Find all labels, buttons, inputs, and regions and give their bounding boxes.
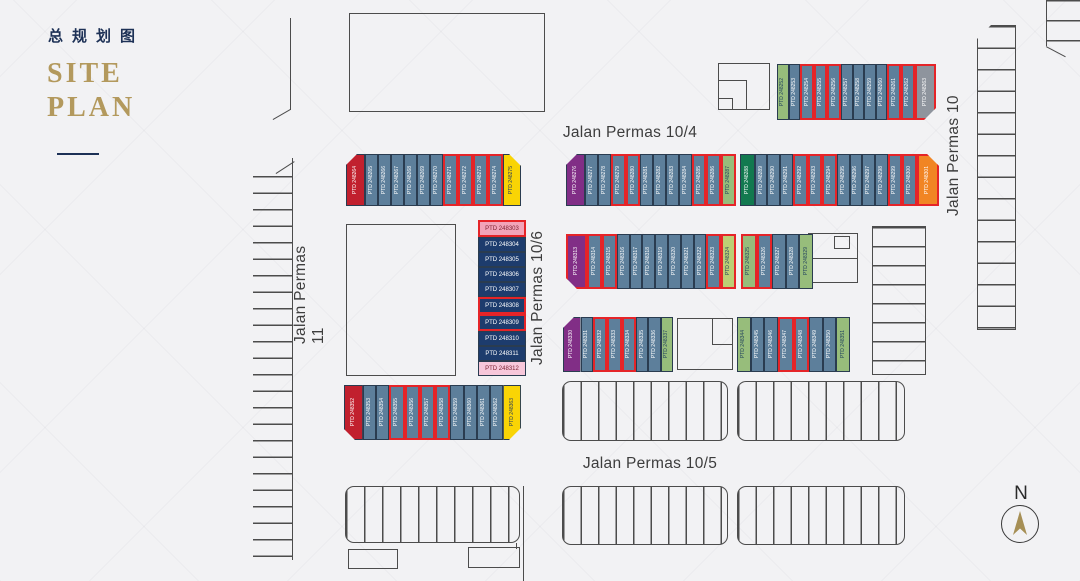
lot-ptd-248269[interactable]: PTD 248269	[417, 154, 430, 206]
lot-label: PTD 248335	[640, 330, 645, 358]
cluster-row4-east: PTD 248344PTD 248345PTD 248346PTD 248347…	[737, 317, 850, 372]
compass-north-label: N	[1006, 483, 1036, 505]
lot-ptd-248357[interactable]: PTD 248357	[420, 385, 435, 440]
lot-ptd-248294[interactable]: PTD 248294	[822, 154, 837, 206]
lot-ptd-248300[interactable]: PTD 248300	[902, 154, 917, 206]
lot-ptd-248305[interactable]: PTD 248305	[478, 252, 526, 267]
lot-label: PTD 248253	[792, 78, 797, 106]
lot-ptd-248257[interactable]: PTD 248257	[841, 64, 853, 120]
lot-ptd-248263[interactable]: PTD 248263	[915, 64, 936, 120]
lot-label: PTD 248252	[780, 78, 785, 106]
lot-ptd-248278[interactable]: PTD 248278	[598, 154, 611, 206]
lot-label: PTD 248328	[790, 247, 795, 275]
lot-label: PTD 248309	[485, 320, 519, 326]
lot-ptd-248256[interactable]: PTD 248256	[827, 64, 841, 120]
lot-label: PTD 248352	[351, 398, 356, 426]
lot-label: PTD 248282	[657, 166, 662, 194]
lot-ptd-248361[interactable]: PTD 248361	[477, 385, 490, 440]
lot-label: PTD 248303	[485, 226, 519, 232]
lot-ptd-248324[interactable]: PTD 248324	[721, 234, 736, 289]
lot-ptd-248308[interactable]: PTD 248308	[478, 297, 526, 314]
lot-ptd-248297[interactable]: PTD 248297	[862, 154, 875, 206]
lot-ptd-248288[interactable]: PTD 248288	[740, 154, 755, 206]
lot-ptd-248317[interactable]: PTD 248317	[630, 234, 643, 289]
lot-ptd-248264[interactable]: PTD 248264	[346, 154, 365, 206]
lot-label: PTD 248347	[783, 330, 788, 358]
lot-ptd-248262[interactable]: PTD 248262	[901, 64, 915, 120]
lot-label: PTD 248314	[592, 247, 597, 275]
lot-label: PTD 248361	[481, 398, 486, 426]
lot-ptd-248283[interactable]: PTD 248283	[666, 154, 679, 206]
lot-ptd-248326[interactable]: PTD 248326	[757, 234, 773, 289]
lot-ptd-248333[interactable]: PTD 248333	[607, 317, 621, 372]
lot-label: PTD 248269	[421, 166, 426, 194]
lot-label: PTD 248271	[448, 166, 453, 194]
lot-ptd-248356[interactable]: PTD 248356	[405, 385, 420, 440]
lot-label: PTD 248349	[813, 330, 818, 358]
lot-label: PTD 248255	[818, 78, 823, 106]
lot-label: PTD 248363	[510, 398, 515, 426]
lot-ptd-248311[interactable]: PTD 248311	[478, 346, 526, 361]
lot-label: PTD 248256	[832, 78, 837, 106]
lot-label: PTD 248348	[799, 330, 804, 358]
lot-ptd-248255[interactable]: PTD 248255	[814, 64, 828, 120]
lot-label: PTD 248272	[463, 166, 468, 194]
lot-ptd-248285[interactable]: PTD 248285	[692, 154, 707, 206]
lot-ptd-248350[interactable]: PTD 248350	[823, 317, 837, 372]
lot-label: PTD 248322	[698, 247, 703, 275]
lot-label: PTD 248295	[841, 166, 846, 194]
lot-ptd-248348[interactable]: PTD 248348	[794, 317, 810, 372]
lot-ptd-248295[interactable]: PTD 248295	[837, 154, 850, 206]
lot-label: PTD 248344	[741, 330, 746, 358]
cluster-row5-west: PTD 248352PTD 248353PTD 248354PTD 248355…	[344, 385, 521, 440]
lot-label: PTD 248298	[879, 166, 884, 194]
lot-label: PTD 248330	[569, 330, 574, 358]
lot-ptd-248306[interactable]: PTD 248306	[478, 267, 526, 282]
lot-ptd-248327[interactable]: PTD 248327	[772, 234, 786, 289]
cluster-row2-mid: PTD 248276PTD 248277PTD 248278PTD 248279…	[566, 154, 736, 206]
lot-label: PTD 248320	[672, 247, 677, 275]
lot-label: PTD 248307	[485, 287, 519, 293]
lot-ptd-248273[interactable]: PTD 248273	[473, 154, 488, 206]
lot-ptd-248322[interactable]: PTD 248322	[694, 234, 707, 289]
lot-label: PTD 248310	[485, 336, 519, 342]
lot-label: PTD 248258	[856, 78, 861, 106]
lot-label: PTD 248261	[892, 78, 897, 106]
lot-ptd-248268[interactable]: PTD 248268	[404, 154, 417, 206]
lot-ptd-248259[interactable]: PTD 248259	[864, 64, 876, 120]
lot-clusters: PTD 248252PTD 248253PTD 248254PTD 248255…	[0, 0, 1080, 581]
lot-ptd-248337[interactable]: PTD 248337	[661, 317, 673, 372]
lot-label: PTD 248350	[827, 330, 832, 358]
lot-label: PTD 248300	[907, 166, 912, 194]
lot-label: PTD 248268	[408, 166, 413, 194]
lot-label: PTD 248305	[485, 257, 519, 263]
lot-ptd-248279[interactable]: PTD 248279	[611, 154, 626, 206]
lot-ptd-248316[interactable]: PTD 248316	[617, 234, 630, 289]
cluster-row3-east: PTD 248325PTD 248326PTD 248327PTD 248328…	[741, 234, 813, 289]
lot-ptd-248276[interactable]: PTD 248276	[566, 154, 585, 206]
lot-ptd-248360[interactable]: PTD 248360	[464, 385, 477, 440]
lot-ptd-248330[interactable]: PTD 248330	[563, 317, 581, 372]
lot-ptd-248253[interactable]: PTD 248253	[789, 64, 801, 120]
lot-ptd-248309[interactable]: PTD 248309	[478, 314, 526, 331]
lot-ptd-248266[interactable]: PTD 248266	[378, 154, 391, 206]
lot-label: PTD 248354	[380, 398, 385, 426]
lot-label: PTD 248264	[353, 166, 358, 194]
lot-label: PTD 248333	[612, 330, 617, 358]
lot-label: PTD 248321	[685, 247, 690, 275]
lot-label: PTD 248323	[711, 247, 716, 275]
lot-label: PTD 248353	[367, 398, 372, 426]
cluster-stack-permas-10-6: PTD 248303PTD 248304PTD 248305PTD 248306…	[478, 220, 526, 376]
lot-label: PTD 248281	[644, 166, 649, 194]
lot-label: PTD 248332	[598, 330, 603, 358]
lot-ptd-248267[interactable]: PTD 248267	[391, 154, 404, 206]
lot-ptd-248353[interactable]: PTD 248353	[363, 385, 376, 440]
lot-ptd-248271[interactable]: PTD 248271	[443, 154, 458, 206]
lot-ptd-248336[interactable]: PTD 248336	[648, 317, 660, 372]
cluster-row4-west: PTD 248330PTD 248331PTD 248332PTD 248333…	[563, 317, 673, 372]
lot-ptd-248287[interactable]: PTD 248287	[721, 154, 736, 206]
lot-ptd-248286[interactable]: PTD 248286	[706, 154, 721, 206]
lot-ptd-248355[interactable]: PTD 248355	[389, 385, 404, 440]
lot-label: PTD 248260	[879, 78, 884, 106]
lot-ptd-248310[interactable]: PTD 248310	[478, 331, 526, 346]
lot-ptd-248334[interactable]: PTD 248334	[622, 317, 636, 372]
lot-ptd-248280[interactable]: PTD 248280	[626, 154, 641, 206]
lot-ptd-248281[interactable]: PTD 248281	[640, 154, 653, 206]
lot-label: PTD 248304	[485, 242, 519, 248]
lot-label: PTD 248319	[659, 247, 664, 275]
lot-label: PTD 248312	[485, 366, 519, 372]
lot-ptd-248329[interactable]: PTD 248329	[799, 234, 813, 289]
lot-ptd-248345[interactable]: PTD 248345	[751, 317, 765, 372]
lot-ptd-248254[interactable]: PTD 248254	[800, 64, 814, 120]
lot-label: PTD 248273	[478, 166, 483, 194]
cluster-row3-west: PTD 248313PTD 248314PTD 248315PTD 248316…	[566, 234, 736, 289]
lot-ptd-248304[interactable]: PTD 248304	[478, 237, 526, 252]
lot-label: PTD 248286	[711, 166, 716, 194]
lot-ptd-248319[interactable]: PTD 248319	[655, 234, 668, 289]
lot-label: PTD 248306	[485, 272, 519, 278]
lot-label: PTD 248334	[626, 330, 631, 358]
lot-label: PTD 248254	[805, 78, 810, 106]
lot-ptd-248325[interactable]: PTD 248325	[741, 234, 757, 289]
lot-ptd-248351[interactable]: PTD 248351	[836, 317, 850, 372]
lot-ptd-248260[interactable]: PTD 248260	[876, 64, 888, 120]
lot-label: PTD 248357	[425, 398, 430, 426]
lot-ptd-248252[interactable]: PTD 248252	[777, 64, 789, 120]
lot-ptd-248349[interactable]: PTD 248349	[809, 317, 823, 372]
lot-label: PTD 248263	[923, 78, 928, 106]
lot-label: PTD 248324	[726, 247, 731, 275]
lot-label: PTD 248301	[925, 166, 930, 194]
lot-ptd-248299[interactable]: PTD 248299	[888, 154, 903, 206]
lot-label: PTD 248266	[382, 166, 387, 194]
lot-ptd-248352[interactable]: PTD 248352	[344, 385, 363, 440]
lot-ptd-248344[interactable]: PTD 248344	[737, 317, 751, 372]
lot-ptd-248290[interactable]: PTD 248290	[767, 154, 780, 206]
lot-label: PTD 248283	[670, 166, 675, 194]
lot-ptd-248303[interactable]: PTD 248303	[478, 220, 526, 237]
lot-ptd-248258[interactable]: PTD 248258	[853, 64, 865, 120]
lot-ptd-248292[interactable]: PTD 248292	[793, 154, 808, 206]
lot-label: PTD 248275	[509, 166, 514, 194]
lot-label: PTD 248276	[573, 166, 578, 194]
lot-label: PTD 248292	[798, 166, 803, 194]
lot-label: PTD 248346	[769, 330, 774, 358]
lot-ptd-248298[interactable]: PTD 248298	[875, 154, 888, 206]
lot-label: PTD 248337	[664, 330, 669, 358]
lot-ptd-248296[interactable]: PTD 248296	[850, 154, 863, 206]
lot-label: PTD 248297	[866, 166, 871, 194]
lot-ptd-248359[interactable]: PTD 248359	[450, 385, 463, 440]
lot-label: PTD 248359	[454, 398, 459, 426]
lot-label: PTD 248293	[812, 166, 817, 194]
lot-ptd-248274[interactable]: PTD 248274	[488, 154, 503, 206]
lot-label: PTD 248345	[755, 330, 760, 358]
lot-label: PTD 248274	[493, 166, 498, 194]
lot-label: PTD 248291	[784, 166, 789, 194]
lot-ptd-248261[interactable]: PTD 248261	[887, 64, 901, 120]
lot-ptd-248362[interactable]: PTD 248362	[490, 385, 503, 440]
lot-ptd-248354[interactable]: PTD 248354	[376, 385, 389, 440]
lot-ptd-248313[interactable]: PTD 248313	[566, 234, 587, 289]
lot-label: PTD 248315	[607, 247, 612, 275]
compass-icon	[1001, 505, 1039, 543]
lot-label: PTD 248265	[369, 166, 374, 194]
lot-label: PTD 248313	[574, 247, 579, 275]
site-plan: 总规划图 SITE PLAN Jalan Permas 10/4 Jalan P…	[0, 0, 1080, 581]
lot-label: PTD 248284	[683, 166, 688, 194]
lot-label: PTD 248317	[634, 247, 639, 275]
lot-label: PTD 248311	[485, 351, 518, 357]
lot-label: PTD 248280	[631, 166, 636, 194]
lot-ptd-248346[interactable]: PTD 248346	[764, 317, 778, 372]
lot-ptd-248291[interactable]: PTD 248291	[780, 154, 793, 206]
lot-ptd-248363[interactable]: PTD 248363	[503, 385, 521, 440]
lot-ptd-248270[interactable]: PTD 248270	[430, 154, 443, 206]
lot-label: PTD 248351	[841, 330, 846, 358]
lot-label: PTD 248331	[584, 330, 589, 358]
lot-label: PTD 248289	[759, 166, 764, 194]
lot-label: PTD 248360	[468, 398, 473, 426]
lot-ptd-248314[interactable]: PTD 248314	[587, 234, 602, 289]
lot-ptd-248293[interactable]: PTD 248293	[808, 154, 823, 206]
lot-label: PTD 248267	[395, 166, 400, 194]
lot-ptd-248265[interactable]: PTD 248265	[365, 154, 378, 206]
lot-label: PTD 248294	[827, 166, 832, 194]
lot-ptd-248282[interactable]: PTD 248282	[653, 154, 666, 206]
lot-label: PTD 248296	[853, 166, 858, 194]
lot-label: PTD 248290	[771, 166, 776, 194]
lot-label: PTD 248259	[868, 78, 873, 106]
lot-label: PTD 248356	[410, 398, 415, 426]
lot-label: PTD 248327	[776, 247, 781, 275]
lot-label: PTD 248355	[394, 398, 399, 426]
cluster-row2-west: PTD 248264PTD 248265PTD 248266PTD 248267…	[346, 154, 521, 206]
lot-label: PTD 248316	[621, 247, 626, 275]
lot-ptd-248328[interactable]: PTD 248328	[786, 234, 800, 289]
lot-ptd-248289[interactable]: PTD 248289	[755, 154, 768, 206]
cluster-row2-east: PTD 248288PTD 248289PTD 248290PTD 248291…	[740, 154, 939, 206]
lot-label: PTD 248336	[652, 330, 657, 358]
lot-label: PTD 248278	[602, 166, 607, 194]
lot-label: PTD 248326	[762, 247, 767, 275]
lot-label: PTD 248279	[616, 166, 621, 194]
lot-ptd-248318[interactable]: PTD 248318	[642, 234, 655, 289]
lot-label: PTD 248277	[589, 166, 594, 194]
lot-label: PTD 248270	[434, 166, 439, 194]
lot-label: PTD 248288	[745, 166, 750, 194]
lot-label: PTD 248358	[440, 398, 445, 426]
lot-label: PTD 248325	[746, 247, 751, 275]
lot-label: PTD 248285	[697, 166, 702, 194]
lot-label: PTD 248329	[804, 247, 809, 275]
lot-ptd-248320[interactable]: PTD 248320	[668, 234, 681, 289]
lot-ptd-248312[interactable]: PTD 248312	[478, 361, 526, 376]
lot-ptd-248307[interactable]: PTD 248307	[478, 282, 526, 297]
lot-ptd-248335[interactable]: PTD 248335	[636, 317, 648, 372]
lot-ptd-248358[interactable]: PTD 248358	[435, 385, 450, 440]
lot-ptd-248332[interactable]: PTD 248332	[593, 317, 607, 372]
lot-ptd-248275[interactable]: PTD 248275	[503, 154, 521, 206]
lot-ptd-248301[interactable]: PTD 248301	[917, 154, 939, 206]
lot-ptd-248347[interactable]: PTD 248347	[778, 317, 794, 372]
compass-arrow-icon	[1003, 507, 1037, 541]
lot-ptd-248321[interactable]: PTD 248321	[681, 234, 694, 289]
lot-ptd-248331[interactable]: PTD 248331	[581, 317, 593, 372]
lot-label: PTD 248299	[892, 166, 897, 194]
lot-ptd-248277[interactable]: PTD 248277	[585, 154, 598, 206]
lot-ptd-248272[interactable]: PTD 248272	[458, 154, 473, 206]
lot-ptd-248315[interactable]: PTD 248315	[602, 234, 617, 289]
lot-label: PTD 248362	[494, 398, 499, 426]
lot-label: PTD 248308	[485, 303, 519, 309]
cluster-row-north-of-permas-10-4: PTD 248252PTD 248253PTD 248254PTD 248255…	[777, 64, 936, 120]
lot-ptd-248284[interactable]: PTD 248284	[679, 154, 692, 206]
lot-label: PTD 248318	[646, 247, 651, 275]
lot-label: PTD 248257	[844, 78, 849, 106]
lot-label: PTD 248287	[726, 166, 731, 194]
lot-label: PTD 248262	[905, 78, 910, 106]
lot-ptd-248323[interactable]: PTD 248323	[706, 234, 721, 289]
